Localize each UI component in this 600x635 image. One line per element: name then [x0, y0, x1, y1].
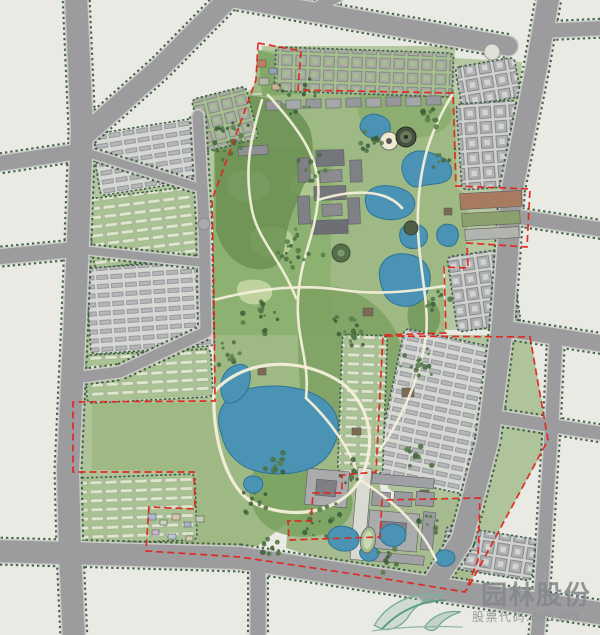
- tree-dot: [416, 519, 422, 525]
- tree-dot: [437, 161, 440, 164]
- building: [196, 516, 204, 522]
- tree-dot: [325, 505, 330, 510]
- tree-dot: [296, 255, 300, 259]
- tree-dot: [351, 457, 356, 462]
- tree-dot: [337, 512, 342, 517]
- building: [160, 520, 167, 525]
- tree-dot: [435, 153, 439, 157]
- tree-dot: [276, 251, 280, 255]
- tree-dot: [231, 121, 234, 124]
- tree-dot: [349, 316, 354, 321]
- building: [322, 204, 342, 217]
- tree-dot: [334, 320, 337, 323]
- lake: [380, 524, 406, 546]
- master-plan-map: [0, 0, 600, 635]
- tree-dot: [447, 296, 453, 302]
- tree-dot: [313, 174, 317, 178]
- tree-dot: [231, 125, 236, 130]
- tree-dot: [285, 252, 288, 255]
- tree-dot: [308, 159, 313, 164]
- tree-dot: [263, 466, 268, 471]
- tree-dot: [337, 332, 342, 337]
- tree-dot: [436, 290, 440, 294]
- tree-dot: [293, 237, 297, 241]
- tree-dot: [351, 333, 355, 337]
- tree-dot: [260, 550, 266, 556]
- lake: [244, 476, 263, 493]
- tree-dot: [323, 168, 328, 173]
- tree-dot: [281, 89, 284, 92]
- tree-dot: [280, 469, 285, 474]
- tree-dot: [278, 84, 281, 87]
- tree-dot: [263, 328, 268, 333]
- tree-dot: [429, 515, 432, 518]
- tree-dot: [349, 340, 352, 343]
- tree-dot: [250, 497, 254, 501]
- tree-dot: [263, 314, 265, 316]
- tree-dot: [219, 128, 222, 131]
- building: [259, 78, 269, 85]
- building: [350, 160, 363, 182]
- tree-dot: [373, 141, 377, 145]
- tree-dot: [226, 127, 229, 130]
- tree-dot: [263, 505, 268, 510]
- tree-dot: [447, 158, 451, 162]
- building: [326, 99, 341, 108]
- tree-dot: [214, 127, 218, 131]
- building: [258, 368, 266, 375]
- tree-dot: [386, 555, 389, 558]
- building: [257, 60, 266, 67]
- tree-dot: [364, 148, 369, 153]
- tree-dot: [225, 353, 229, 357]
- tree-dot: [359, 329, 364, 334]
- tree-dot: [433, 525, 438, 530]
- tree-dot: [303, 83, 308, 88]
- tree-dot: [317, 171, 320, 174]
- building: [462, 210, 521, 226]
- tree-dot: [350, 479, 353, 482]
- tree-dot: [426, 347, 429, 350]
- tree-dot: [297, 159, 301, 163]
- tree-dot: [243, 510, 247, 514]
- tree-dot: [306, 252, 310, 256]
- building: [298, 196, 311, 224]
- tree-dot: [324, 534, 328, 538]
- tree-dot: [238, 133, 244, 139]
- tree-dot: [274, 464, 278, 468]
- tree-dot: [280, 254, 284, 258]
- master-plan-screenshot: ®园林股份 股票代码:605303: [0, 0, 600, 635]
- tree-dot: [334, 502, 337, 505]
- building: [186, 536, 193, 541]
- tree-dot: [294, 228, 297, 231]
- tree-dot: [429, 463, 434, 468]
- tree-dot: [273, 311, 276, 314]
- tree-dot: [270, 457, 276, 463]
- tree-dot: [416, 454, 421, 459]
- building: [315, 479, 336, 497]
- tree-dot: [442, 158, 447, 163]
- tree-dot: [314, 95, 317, 98]
- tree-dot: [302, 92, 306, 96]
- tree-dot: [422, 364, 428, 370]
- building: [363, 308, 373, 316]
- tree-dot: [217, 362, 222, 367]
- tree-dot: [290, 265, 295, 270]
- tree-dot: [366, 144, 371, 149]
- tree-dot: [277, 461, 280, 464]
- tree-dot: [417, 373, 421, 377]
- tree-dot: [238, 145, 243, 150]
- tree-dot: [287, 245, 290, 248]
- building: [460, 190, 523, 209]
- tree-dot: [242, 491, 246, 495]
- tree-dot: [381, 570, 386, 575]
- tree-dot: [223, 149, 226, 152]
- tree-dot: [420, 109, 426, 115]
- tree-dot: [408, 449, 412, 453]
- tree-dot: [253, 492, 255, 494]
- tree-dot: [318, 520, 321, 523]
- tree-dot: [280, 450, 286, 456]
- tree-dot: [289, 261, 292, 264]
- plaza-circle: [404, 221, 418, 235]
- building: [386, 97, 401, 106]
- tree-dot: [430, 373, 433, 376]
- tree-dot: [306, 527, 309, 530]
- building: [346, 98, 361, 107]
- tree-dot: [222, 347, 225, 350]
- building: [148, 514, 156, 520]
- lake: [437, 224, 459, 246]
- tree-dot: [241, 320, 246, 325]
- building: [426, 96, 441, 105]
- tree-dot: [432, 165, 436, 169]
- tree-dot: [311, 522, 314, 525]
- tree-dot: [308, 106, 311, 109]
- tree-dot: [289, 244, 293, 248]
- tree-dot: [216, 150, 219, 153]
- tree-dot: [302, 258, 306, 262]
- tree-dot: [257, 307, 261, 311]
- tree-dot: [263, 492, 267, 496]
- plaza-circle: [404, 135, 408, 139]
- tree-dot: [249, 501, 254, 506]
- tree-dot: [302, 106, 305, 109]
- tree-dot: [257, 500, 261, 504]
- tree-dot: [384, 560, 389, 565]
- tree-dot: [328, 519, 333, 524]
- tree-dot: [361, 343, 365, 347]
- tree-dot: [281, 457, 285, 461]
- tree-dot: [434, 530, 438, 534]
- tree-dot: [308, 77, 311, 80]
- tree-dot: [394, 562, 399, 567]
- tree-dot: [276, 550, 281, 555]
- building: [316, 150, 345, 167]
- tree-dot: [436, 519, 439, 522]
- tree-dot: [304, 168, 308, 172]
- tree-dot: [289, 112, 292, 115]
- tree-dot: [358, 141, 363, 146]
- building: [152, 530, 159, 535]
- tree-dot: [221, 342, 224, 345]
- tree-dot: [259, 315, 263, 319]
- tree-dot: [240, 311, 245, 316]
- tree-dot: [284, 257, 289, 262]
- tree-dot: [262, 542, 267, 547]
- tree-dot: [312, 534, 315, 537]
- tree-dot: [356, 478, 359, 481]
- tree-dot: [427, 303, 431, 307]
- tree-dot: [232, 340, 236, 344]
- plaza-circle: [484, 44, 500, 60]
- tree-dot: [230, 357, 235, 362]
- tree-dot: [287, 93, 291, 97]
- tree-dot: [246, 124, 249, 127]
- building: [269, 68, 277, 74]
- tree-dot: [399, 365, 402, 368]
- tree-dot: [454, 148, 456, 150]
- tree-dot: [267, 552, 271, 556]
- tree-dot: [226, 141, 229, 144]
- tree-dot: [392, 546, 397, 551]
- tree-dot: [273, 467, 278, 472]
- building: [366, 98, 381, 107]
- tree-dot: [363, 130, 368, 135]
- building: [348, 198, 361, 224]
- tree-dot: [387, 551, 390, 554]
- tree-dot: [271, 546, 274, 549]
- tree-dot: [212, 140, 217, 145]
- tree-dot: [408, 464, 412, 468]
- tree-dot: [413, 456, 417, 460]
- tree-dot: [409, 446, 412, 449]
- tree-dot: [415, 363, 421, 369]
- tree-dot: [321, 253, 326, 258]
- lake: [436, 550, 455, 566]
- tree-dot: [302, 530, 307, 535]
- tree-dot: [355, 323, 359, 327]
- tree-dot: [238, 351, 242, 355]
- tree-dot: [402, 353, 407, 358]
- tree-dot: [434, 124, 439, 129]
- tree-dot: [310, 178, 315, 183]
- tree-dot: [276, 318, 280, 322]
- plaza-circle: [338, 250, 345, 257]
- tree-dot: [425, 515, 428, 518]
- tree-dot: [431, 297, 436, 302]
- building: [444, 208, 452, 215]
- tree-dot: [213, 149, 216, 152]
- building: [168, 534, 176, 539]
- tree-dot: [265, 537, 270, 542]
- tree-dot: [410, 365, 413, 368]
- tree-dot: [304, 181, 306, 183]
- tree-dot: [285, 239, 290, 244]
- tree-dot: [349, 343, 353, 347]
- tree-dot: [380, 141, 384, 145]
- tree-dot: [432, 118, 435, 121]
- building: [352, 428, 361, 435]
- tree-dot: [374, 135, 379, 140]
- building: [286, 100, 301, 109]
- tree-dot: [350, 463, 353, 466]
- tree-dot: [431, 302, 436, 307]
- tree-dot: [293, 109, 298, 114]
- building: [406, 97, 421, 106]
- tree-dot: [221, 158, 225, 162]
- tree-dot: [426, 115, 429, 118]
- tree-dot: [438, 295, 441, 298]
- tree-dot: [317, 507, 322, 512]
- tree-dot: [377, 550, 381, 554]
- tree-dot: [275, 540, 280, 545]
- tree-dot: [295, 248, 301, 254]
- tree-dot: [426, 523, 429, 526]
- tree-dot: [239, 140, 243, 144]
- tree-dot: [260, 302, 265, 307]
- building: [184, 522, 191, 527]
- building: [172, 514, 180, 520]
- tree-dot: [418, 444, 424, 450]
- tree-dot: [343, 330, 346, 333]
- building: [312, 219, 348, 234]
- tree-dot: [317, 153, 322, 158]
- tree-dot: [428, 110, 432, 114]
- tree-dot: [430, 308, 434, 312]
- tree-dot: [344, 481, 347, 484]
- tree-dot: [296, 233, 299, 236]
- tree-dot: [427, 353, 430, 356]
- plaza-circle: [386, 138, 392, 144]
- tree-dot: [416, 359, 420, 363]
- lake: [328, 526, 359, 551]
